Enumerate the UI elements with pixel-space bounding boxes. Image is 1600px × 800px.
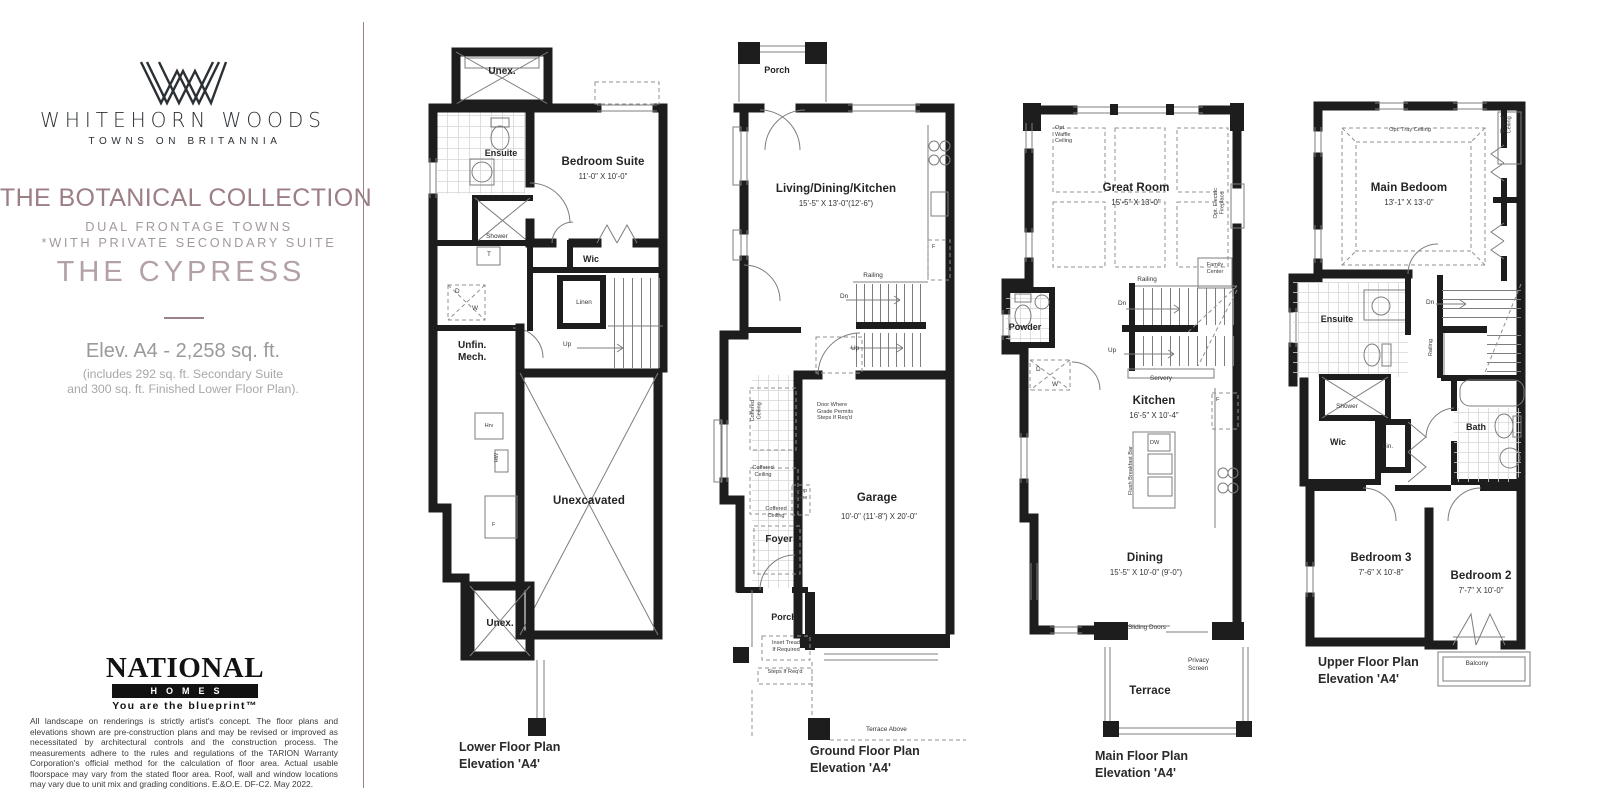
room-label-powder: Powder — [1009, 322, 1042, 333]
dim-label-bedroom-2: 7'-7" X 10'-0" — [1459, 586, 1504, 595]
room-label-wic-upper: Wic — [1330, 437, 1346, 448]
stair-label-dn-upper: Dn — [1426, 299, 1434, 307]
room-label-bedroom-3: Bedroom 3 — [1351, 552, 1412, 566]
builder-tagline: You are the blueprint™ — [112, 700, 258, 712]
railing-label-main: Railing — [1137, 276, 1157, 284]
elevation-note: (includes 292 sq. ft. Secondary Suite an… — [67, 367, 299, 397]
room-label-linen-upper: Lin. — [1383, 443, 1393, 451]
brand-name: WHITEHORN WOODS — [40, 108, 326, 132]
fixture-label-fridge-main: F — [1216, 397, 1219, 404]
whitehorn-woods-logo-icon — [134, 58, 232, 108]
room-label-unex-bottom: Unex. — [486, 618, 513, 630]
dim-label-main-bedroom: 13'-1" X 13'-0" — [1384, 198, 1433, 207]
room-label-porch-bottom: Porch — [771, 612, 797, 623]
dim-label-great-room: 15'-5" X 13'-0" — [1111, 198, 1160, 207]
note-sliding-doors: Sliding Doors — [1128, 624, 1166, 632]
room-label-linen: Linen — [576, 299, 592, 307]
room-label-ensuite: Ensuite — [485, 148, 518, 159]
note-door-where-grade-permits: Door Where Grade Permits Steps If Req'd — [817, 402, 853, 422]
title-divider — [164, 317, 204, 319]
note-sloped-ceiling: Sloped Ceiling — [1500, 116, 1513, 133]
collection-title: THE BOTANICAL COLLECTION — [0, 184, 372, 213]
stair-label-up: Up — [563, 341, 571, 349]
fixture-label-hot-water: HW — [494, 453, 501, 462]
note-steps-if-reqd: Steps If Req'd — [768, 669, 803, 676]
railing-label: Railing — [863, 272, 883, 280]
fixture-label-fridge: F — [932, 244, 935, 251]
fixture-label-furnace: F — [492, 522, 495, 529]
brochure-page: WHITEHORN WOODS TOWNS ON BRITANNIA THE B… — [0, 0, 1600, 800]
room-label-main-bedroom: Main Bedoom — [1371, 182, 1448, 196]
fixture-label-dishwasher: DW — [1150, 440, 1159, 447]
note-terrace-above: Terrace Above — [866, 726, 907, 734]
room-label-bath: Bath — [1466, 422, 1486, 433]
note-coffered-ceiling-1: Coffered Ceiling — [750, 400, 763, 421]
caption-lower-elevation: Elevation 'A4' — [459, 757, 540, 772]
dim-label-bedroom-suite: 11'-0" X 10'-0" — [579, 172, 628, 181]
railing-label-upper: Railing — [1428, 339, 1435, 356]
caption-upper-elevation: Elevation 'A4' — [1318, 672, 1399, 687]
room-label-great-room: Great Room — [1103, 182, 1170, 196]
dim-label-garage: 10'-0" (11'-8") X 20'-0" — [841, 512, 917, 521]
fixture-label-tank: T — [487, 251, 491, 259]
note-family-center: Family Center — [1207, 262, 1224, 275]
room-label-bedroom-2: Bedroom 2 — [1451, 570, 1512, 584]
caption-lower-floor-plan: Lower Floor Plan — [459, 740, 560, 755]
legal-disclaimer: All landscape on renderings is strictly … — [30, 716, 338, 790]
stair-label-dn-main: Dn — [1118, 300, 1126, 308]
note-coffered-ceiling-2: Coffered Ceiling — [752, 465, 773, 478]
stair-label-up: Up — [851, 345, 859, 353]
caption-main-floor-plan: Main Floor Plan — [1095, 749, 1188, 764]
caption-main-elevation: Elevation 'A4' — [1095, 766, 1176, 781]
room-label-balcony: Balcony — [1466, 660, 1489, 668]
dim-label-bedroom-3: 7'-6" X 10'-8" — [1359, 568, 1404, 577]
fixture-label-washer: W — [472, 305, 478, 313]
room-label-kitchen: Kitchen — [1133, 395, 1176, 409]
room-label-wic: Wic — [583, 254, 599, 265]
room-label-garage: Garage — [857, 492, 897, 506]
room-label-shower-upper: Shower — [1336, 403, 1358, 411]
note-inset-tread: Inset Tread If Required — [772, 640, 800, 653]
dim-label-dining: 15'-5" X 10'-0" (9'-0") — [1110, 568, 1182, 577]
fixture-label-washer-main: W — [1052, 381, 1058, 389]
room-label-living-dining-kitchen: Living/Dining/Kitchen — [776, 183, 896, 197]
stair-label-dn: Dn — [840, 293, 848, 301]
collection-subtitle-2: *WITH PRIVATE SECONDARY SUITE — [42, 235, 337, 250]
note-flush-breakfast-bar: Flush Breakfast Bar — [1128, 446, 1135, 495]
sidebar-divider — [363, 22, 364, 788]
note-drop-zone: Drop Zone — [795, 488, 808, 501]
room-label-porch-top: Porch — [764, 65, 790, 76]
stair-label-up-main: Up — [1108, 347, 1116, 355]
room-label-unfinished-mech: Unfin. Mech. — [458, 340, 486, 364]
builder-logo-name: NATIONAL — [106, 652, 264, 685]
builder-logo-bar: HOMES — [112, 684, 258, 698]
collection-subtitle-1: DUAL FRONTAGE TOWNS — [85, 219, 292, 234]
caption-ground-floor-plan: Ground Floor Plan — [810, 744, 920, 759]
elevation-area: Elev. A4 - 2,258 sq. ft. — [86, 340, 280, 363]
lower-floor-plan-drawing — [425, 38, 670, 738]
note-coffered-ceiling-3: Coffered Ceiling — [765, 506, 786, 519]
builder-logo-sub: HOMES — [141, 686, 228, 696]
room-label-shower: Shower — [486, 233, 508, 241]
room-label-terrace: Terrace — [1129, 685, 1170, 699]
brand-tagline: TOWNS ON BRITANNIA — [89, 136, 282, 147]
note-opt-tray-ceiling: Opt. Tray Ceiling — [1389, 127, 1431, 134]
dim-label-living-dining-kitchen: 15'-5" X 13'-0"(12'-6") — [799, 199, 873, 208]
note-opt-electric-fireplace: Opt. Electric Fireplace — [1213, 188, 1226, 218]
room-label-foyer: Foyer — [765, 534, 792, 546]
room-label-bedroom-suite: Bedroom Suite — [561, 156, 644, 170]
note-privacy-screen: Privacy Screen — [1188, 657, 1209, 672]
note-opt-waffle-ceiling: Opt. Waffle Ceiling — [1055, 125, 1072, 145]
room-label-dining: Dining — [1127, 552, 1163, 566]
caption-ground-elevation: Elevation 'A4' — [810, 761, 891, 776]
caption-upper-floor-plan: Upper Floor Plan — [1318, 655, 1419, 670]
note-servery: Servery — [1150, 375, 1172, 383]
fixture-label-hrv: Hrv — [485, 423, 494, 430]
model-name: THE CYPRESS — [57, 256, 306, 289]
room-label-unex-top: Unex. — [488, 66, 515, 78]
ground-floor-plan-drawing — [688, 30, 968, 750]
fixture-label-dryer-main: D — [1036, 366, 1041, 374]
dim-label-kitchen: 16'-5" X 10'-4" — [1129, 411, 1178, 420]
room-label-ensuite-upper: Ensuite — [1321, 314, 1354, 325]
fixture-label-dryer: D — [455, 288, 460, 296]
room-label-unexcavated: Unexcavated — [553, 495, 625, 509]
